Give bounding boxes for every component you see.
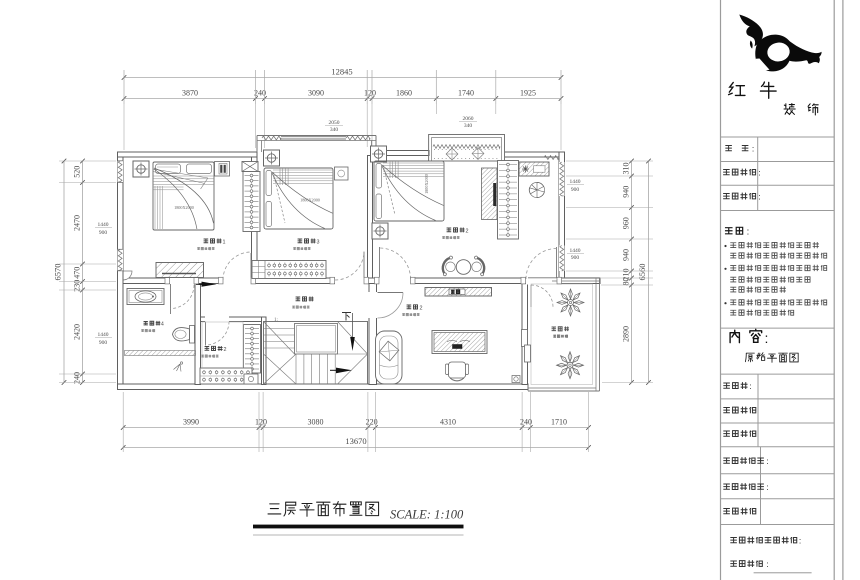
svg-text:220: 220 <box>366 418 378 427</box>
svg-text::: : <box>766 559 768 569</box>
svg-text::: : <box>766 482 768 492</box>
svg-text:4310: 4310 <box>440 418 456 427</box>
svg-text:900: 900 <box>99 340 108 346</box>
svg-text::: : <box>799 536 801 546</box>
svg-text::: : <box>758 192 760 202</box>
svg-text:940: 940 <box>622 249 631 261</box>
svg-text:960: 960 <box>622 217 631 229</box>
svg-text::: : <box>766 456 768 466</box>
svg-text:SCALE: 1:100: SCALE: 1:100 <box>390 508 464 522</box>
svg-text:6570: 6570 <box>53 264 63 281</box>
svg-text:1800X2000: 1800X2000 <box>300 198 320 203</box>
svg-text:1740: 1740 <box>458 89 474 98</box>
svg-text:3870: 3870 <box>182 89 198 98</box>
svg-text:340: 340 <box>464 123 473 129</box>
svg-text:1440: 1440 <box>98 222 109 228</box>
svg-text:1440: 1440 <box>570 248 581 254</box>
svg-text:3080: 3080 <box>308 418 324 427</box>
svg-text:2: 2 <box>466 228 469 234</box>
svg-text::: : <box>765 330 769 346</box>
svg-text:1800X2000: 1800X2000 <box>174 205 194 210</box>
svg-text:13670: 13670 <box>345 436 366 446</box>
svg-text:2420: 2420 <box>73 324 82 340</box>
svg-text:3: 3 <box>317 239 320 245</box>
svg-text:310: 310 <box>622 163 631 175</box>
svg-text:2470: 2470 <box>73 215 82 231</box>
svg-text::: : <box>747 227 750 238</box>
svg-text:1: 1 <box>223 239 226 245</box>
svg-text:3090: 3090 <box>308 89 324 98</box>
svg-text:900: 900 <box>571 255 580 261</box>
svg-text::: : <box>752 144 754 154</box>
svg-text:2060: 2060 <box>463 116 474 122</box>
svg-text:1:: 1: <box>274 318 278 323</box>
svg-text:120: 120 <box>364 89 376 98</box>
svg-text:120: 120 <box>255 418 267 427</box>
svg-text:340: 340 <box>330 127 339 133</box>
svg-text:940: 940 <box>622 186 631 198</box>
svg-text:12845: 12845 <box>331 67 352 77</box>
svg-text:1440: 1440 <box>98 332 109 338</box>
svg-text:1800X2000: 1800X2000 <box>424 174 429 194</box>
svg-text:1925: 1925 <box>520 89 536 98</box>
svg-text:3990: 3990 <box>183 418 199 427</box>
svg-text:1860: 1860 <box>396 89 412 98</box>
svg-text:2: 2 <box>224 347 227 353</box>
svg-text:2050: 2050 <box>329 120 340 126</box>
svg-text:470: 470 <box>73 267 82 279</box>
svg-text:900: 900 <box>99 230 108 236</box>
svg-text::: : <box>758 168 760 178</box>
svg-text::: : <box>749 381 751 391</box>
svg-text:900: 900 <box>571 187 580 193</box>
svg-text:2: 2 <box>420 305 423 311</box>
svg-text:2890: 2890 <box>622 326 631 342</box>
svg-text:1710: 1710 <box>551 418 567 427</box>
svg-text:520: 520 <box>73 166 82 178</box>
svg-text:80: 80 <box>622 278 631 286</box>
svg-text:4: 4 <box>161 322 164 328</box>
svg-text:1440: 1440 <box>570 179 581 185</box>
